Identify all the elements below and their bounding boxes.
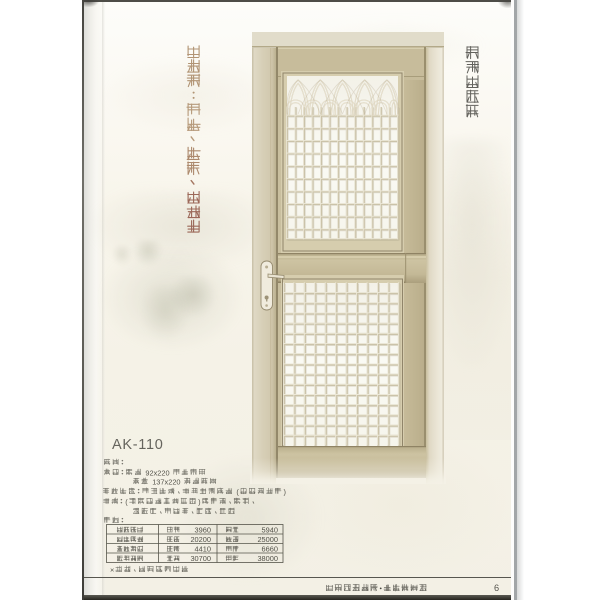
- svg-text:4410: 4410: [195, 545, 211, 554]
- svg-text:(: (: [125, 497, 128, 506]
- svg-text:6660: 6660: [262, 545, 278, 554]
- svg-text:5940: 5940: [262, 525, 278, 534]
- svg-text:×: ×: [110, 565, 114, 574]
- svg-text:(: (: [236, 487, 239, 496]
- svg-text:20200: 20200: [190, 535, 211, 544]
- svg-text:): ): [198, 497, 200, 506]
- svg-text:92x220: 92x220: [145, 468, 169, 477]
- svg-text:): ): [284, 487, 286, 496]
- svg-text:30700: 30700: [190, 554, 211, 563]
- svg-text:25000: 25000: [257, 535, 278, 544]
- svg-text:137x220: 137x220: [152, 477, 180, 486]
- svg-text:3960: 3960: [195, 525, 211, 534]
- svg-text:38000: 38000: [257, 554, 278, 563]
